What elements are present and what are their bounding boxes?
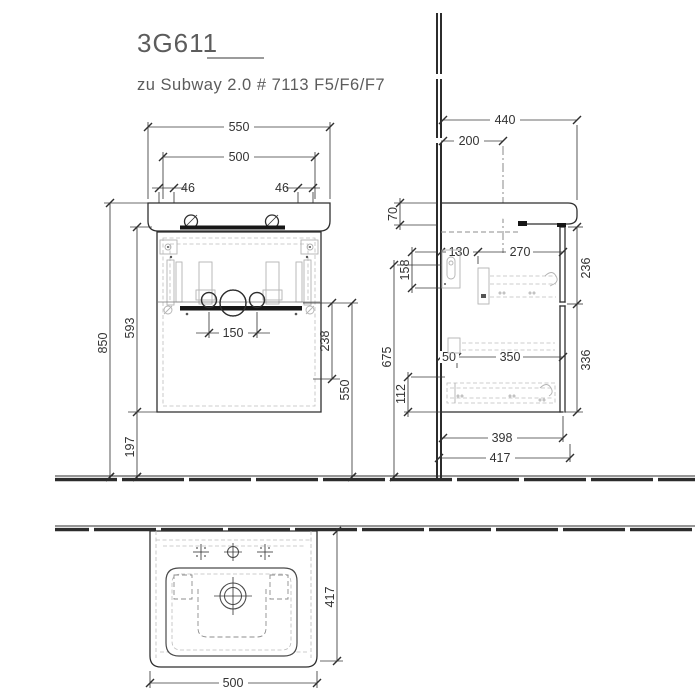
product-reference: zu Subway 2.0 # 7113 F5/F6/F7 <box>137 76 385 94</box>
dim-basin-width: 550 <box>229 120 250 134</box>
dim-cabinet-height: 593 <box>123 318 137 339</box>
dim-drain-height: 550 <box>338 380 352 401</box>
plan-view: 500 417 <box>146 527 343 690</box>
cabinet-front <box>157 232 321 412</box>
mounting-rail-upper <box>180 226 285 230</box>
dim-drawer-inner-height: 238 <box>318 331 332 352</box>
wall-line <box>433 13 444 478</box>
dim-bottom-inner: 112 <box>394 384 408 404</box>
plan-wall-line <box>55 526 695 530</box>
dim-drain-spacing: 150 <box>223 326 244 340</box>
dim-offset-left: 46 <box>181 181 195 195</box>
dim-overall-depth: 417 <box>490 451 511 465</box>
dim-cabinet-depth: 398 <box>492 431 513 445</box>
washbasin-side <box>441 203 577 224</box>
dim-offset-right: 46 <box>275 181 289 195</box>
dim-plan-depth: 417 <box>323 587 337 608</box>
dim-rail-length: 270 <box>510 245 531 259</box>
mounting-rail-lower <box>180 306 302 311</box>
dim-apron-height: 70 <box>386 207 400 221</box>
side-view: 440 200 130 270 <box>380 13 593 481</box>
basin-bowl-plan <box>166 568 297 656</box>
floor-line <box>55 476 695 480</box>
dim-upper-front-height: 236 <box>579 258 593 279</box>
dim-tap-center: 200 <box>459 134 480 148</box>
technical-drawing-page: 3G611 zu Subway 2.0 # 7113 F5/F6/F7 550 … <box>0 0 700 700</box>
dim-front-gap: 50 <box>442 350 456 364</box>
dim-cabinet-width: 500 <box>229 150 250 164</box>
model-code: 3G611 <box>137 28 218 58</box>
dim-basin-depth: 440 <box>495 113 516 127</box>
dim-total-height: 850 <box>96 333 110 354</box>
lower-drawer-internals <box>447 338 555 403</box>
technical-drawing: 3G611 zu Subway 2.0 # 7113 F5/F6/F7 550 … <box>0 0 700 700</box>
dim-lower-rail-length: 350 <box>500 350 521 364</box>
upper-drawer-internals <box>478 268 557 304</box>
front-view: 550 500 46 46 <box>96 120 358 481</box>
dim-bracket-height: 158 <box>398 260 412 281</box>
dim-plan-width: 500 <box>223 676 244 690</box>
dim-outlet-height: 675 <box>380 347 394 368</box>
dim-lower-front-height: 336 <box>579 350 593 371</box>
dim-floor-clearance: 197 <box>123 437 137 458</box>
